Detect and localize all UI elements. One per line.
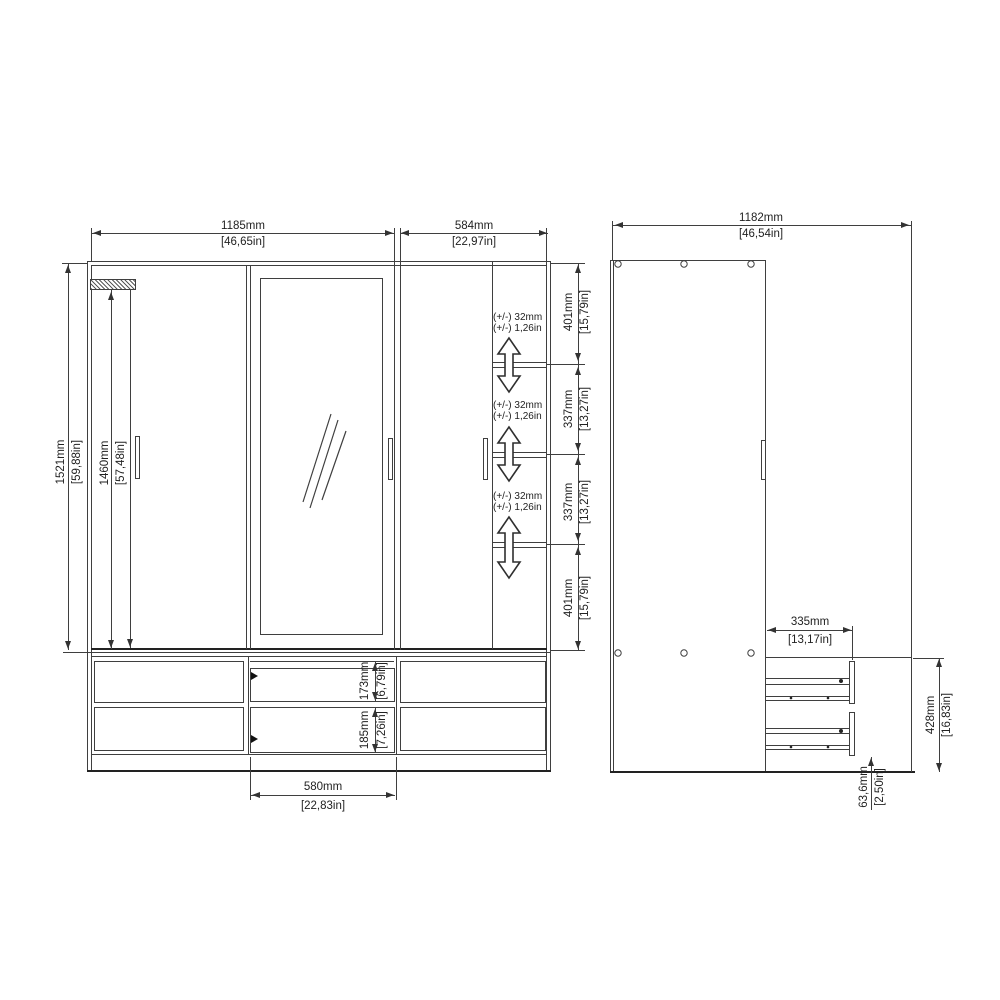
- dimension-line: [68, 263, 69, 650]
- cabinet-top-line: [91, 265, 547, 266]
- fitting-hole: [748, 261, 754, 267]
- extension-line: [396, 757, 397, 800]
- drawer-front: [250, 668, 395, 702]
- dimension-line: [871, 757, 872, 810]
- drawer-box-top-line: [91, 656, 547, 657]
- extension-line: [91, 228, 92, 262]
- door-handle: [761, 440, 766, 480]
- dimension-line: [939, 658, 940, 772]
- extension-line: [250, 757, 251, 800]
- drawer-rail-line: [766, 733, 849, 734]
- drawer-rail-line: [766, 700, 849, 701]
- panel-edge-line: [613, 260, 614, 772]
- dim-label-mm: 1521mm: [55, 440, 67, 485]
- tolerance-in: (+/-) 1,26in: [493, 503, 542, 514]
- extension-line: [63, 652, 550, 653]
- dim-label-mm: 185mm: [359, 711, 371, 749]
- drawer-rail-line: [766, 728, 849, 729]
- fitting-hole: [615, 261, 621, 267]
- door-edge-line: [394, 228, 395, 650]
- dim-label-mm: 428mm: [925, 696, 937, 734]
- dim-label-in: [57,48in]: [115, 441, 127, 485]
- door-handle: [483, 438, 488, 480]
- dim-label-in: [6,79in]: [376, 662, 388, 700]
- fitting-hole: [748, 650, 754, 656]
- door-edge-line: [400, 228, 401, 650]
- drawer-front: [250, 707, 395, 753]
- cabinet-edge-line: [87, 261, 88, 772]
- dim-label-in: [46,54in]: [739, 228, 783, 240]
- door-edge-line: [246, 265, 247, 649]
- dim-label-mm: 580mm: [304, 781, 342, 793]
- dimension-line: [613, 225, 911, 226]
- fitting-hole: [615, 650, 621, 656]
- dim-label-in: [16,83in]: [941, 693, 953, 737]
- dim-label-mm: 63,6mm: [858, 766, 870, 808]
- dim-label-mm: 173mm: [359, 662, 371, 700]
- dim-label-in: [59,88in]: [71, 440, 83, 484]
- drawer-front: [94, 661, 244, 703]
- dim-label-mm: 401mm: [563, 579, 575, 617]
- drawer-rail-line: [766, 684, 849, 685]
- slide-fixing-dot: [827, 697, 830, 700]
- fitting-hole: [681, 650, 687, 656]
- door-edge-line: [250, 265, 251, 649]
- dimension-line: [251, 795, 395, 796]
- drawer-unit-top-line: [765, 657, 911, 658]
- dim-label-in: [13,27in]: [579, 480, 591, 524]
- panel-edge-line: [610, 260, 611, 772]
- door-bottom-line: [91, 648, 547, 650]
- extension-line: [913, 658, 944, 659]
- shelf-adjust-arrow: [498, 338, 520, 392]
- tolerance-in: (+/-) 1,26in: [493, 412, 542, 423]
- dimension-line: [767, 630, 852, 631]
- drawer-rail-line: [766, 749, 849, 750]
- shelf-adjust-arrow: [498, 427, 520, 481]
- tolerance-mm: (+/-) 32mm: [493, 492, 542, 503]
- technical-drawing-canvas: 1185mm [46,65in] 584mm [22,97in] 1521mm …: [0, 0, 1000, 1000]
- drawer-compartment-line: [248, 656, 249, 755]
- dim-label-mm: 1182mm: [739, 212, 783, 224]
- dim-label-in: [22,97in]: [452, 236, 496, 248]
- slide-fixing-dot: [790, 697, 793, 700]
- shelf-line: [492, 452, 546, 453]
- panel-top-line: [610, 260, 765, 261]
- tolerance-label: (+/-) 32mm (+/-) 1,26in: [493, 492, 542, 513]
- dimension-line: [92, 233, 394, 234]
- extension-line: [546, 454, 585, 455]
- drawer-rail-line: [766, 745, 849, 746]
- dim-label-in: [15,79in]: [579, 290, 591, 334]
- slide-fixing-dot: [790, 746, 793, 749]
- dim-label-mm: 337mm: [563, 483, 575, 521]
- dim-label-in: [15,79in]: [579, 576, 591, 620]
- mirror-frame: [260, 278, 383, 635]
- tolerance-label: (+/-) 32mm (+/-) 1,26in: [493, 401, 542, 422]
- tolerance-mm: (+/-) 32mm: [493, 401, 542, 412]
- cabinet-edge-line: [550, 261, 551, 772]
- dim-label-mm: 1460mm: [99, 441, 111, 486]
- dim-label-mm: 1185mm: [221, 220, 265, 232]
- drawer-front-section: [849, 712, 855, 756]
- drawer-front-section: [849, 661, 855, 704]
- dim-label-mm: 337mm: [563, 390, 575, 428]
- dim-label-mm: 335mm: [791, 616, 829, 628]
- tolerance-mm: (+/-) 32mm: [493, 313, 542, 324]
- drawer-front: [94, 707, 244, 751]
- drawer-front: [400, 707, 546, 751]
- door-handle: [135, 436, 140, 479]
- shelf-line: [492, 457, 546, 458]
- dim-label-in: [2,50in]: [874, 768, 886, 806]
- dim-label-in: [13,17in]: [788, 634, 832, 646]
- drawer-compartment-line: [250, 661, 394, 662]
- shelf-line: [492, 542, 546, 543]
- door-handle: [388, 438, 393, 480]
- cabinet-bottom-line: [87, 770, 551, 772]
- drawer-rail-line: [766, 696, 849, 697]
- extension-line: [550, 650, 585, 651]
- plinth-line: [91, 754, 547, 755]
- extension-line: [612, 221, 613, 261]
- fitting-hole: [681, 261, 687, 267]
- dimension-line: [400, 233, 548, 234]
- drawer-front: [400, 661, 546, 703]
- dim-label-in: [13,27in]: [579, 387, 591, 431]
- dim-label-in: [22,83in]: [301, 800, 345, 812]
- extension-line: [62, 263, 87, 264]
- slide-fixing-dot: [827, 746, 830, 749]
- tolerance-in: (+/-) 1,26in: [493, 324, 542, 335]
- cabinet-top-line: [87, 261, 551, 262]
- drawer-compartment-line: [396, 656, 397, 755]
- extension-line: [546, 544, 585, 545]
- extension-line: [911, 221, 912, 772]
- extension-line: [546, 364, 585, 365]
- extension-line: [852, 626, 853, 660]
- cabinet-edge-line: [546, 265, 547, 772]
- dim-label-mm: 584mm: [455, 220, 493, 232]
- dim-label-in: [7,26in]: [376, 711, 388, 749]
- extension-line: [546, 228, 547, 265]
- door-edge-line: [130, 289, 131, 648]
- drawer-rail-line: [766, 678, 849, 679]
- dim-label-in: [46,65in]: [221, 236, 265, 248]
- shelf-line: [492, 547, 546, 548]
- dimension-line: [111, 290, 112, 649]
- dim-label-mm: 401mm: [563, 293, 575, 331]
- tolerance-label: (+/-) 32mm (+/-) 1,26in: [493, 313, 542, 334]
- extension-line: [550, 263, 585, 264]
- cabinet-edge-line: [91, 265, 92, 772]
- shelf-line: [492, 362, 546, 363]
- slide-fixing-dot: [839, 679, 843, 683]
- shelf-line: [492, 367, 546, 368]
